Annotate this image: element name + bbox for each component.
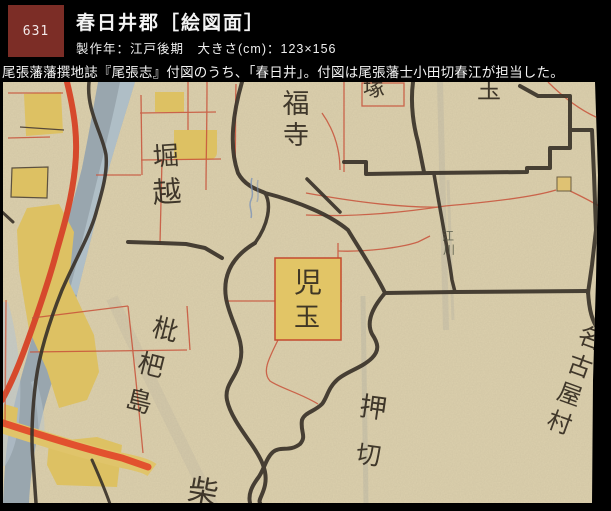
map-label-partial-bottom: 柴 (185, 474, 220, 511)
field-horikoshi-2 (174, 130, 217, 160)
map-label-kodama-1: 児 (294, 268, 322, 299)
map-label-partial-tama: 玉 (477, 80, 501, 104)
boundary-lower-horizontal (385, 291, 588, 293)
item-metadata: 製作年：江戸後期 大きさ(cm)：123×156 (76, 38, 337, 57)
catalog-number-badge: 631 (8, 5, 64, 57)
map-image[interactable]: 福 寺 塚 玉 堀 越 児 玉 枇 杷 島 押 切 江 川 (0, 80, 611, 511)
field-horikoshi-1 (155, 92, 184, 112)
map-label-fukuji-2: 寺 (283, 121, 309, 150)
map-label-oshikiri-2: 切 (354, 441, 383, 471)
field-left-outlined (11, 167, 48, 198)
archive-page: 631 春日井郡［絵図面］ 製作年：江戸後期 大きさ(cm)：123×156 尾… (0, 0, 611, 511)
map-svg: 福 寺 塚 玉 堀 越 児 玉 枇 杷 島 押 切 江 川 (0, 80, 611, 511)
road-left-edge-line (5, 300, 6, 425)
map-label-fukuji-1: 福 (283, 89, 310, 119)
map-label-horikoshi-1: 堀 (152, 141, 180, 172)
map-label-egawa-1: 江 (442, 229, 454, 243)
field-right-small (557, 177, 571, 191)
page-title: 春日井郡［絵図面］ (76, 8, 265, 35)
map-label-egawa-2: 川 (443, 243, 455, 257)
item-description: 尾張藩藩撰地誌『尾張志』付図のうち、「春日井」。付図は尾張藩士小田切春江が担当し… (2, 61, 564, 81)
catalog-number: 631 (23, 24, 49, 39)
map-label-oshikiri-1: 押 (358, 391, 389, 424)
map-label-kodama-2: 玉 (294, 303, 320, 332)
map-label-partial-tsuka: 塚 (363, 80, 385, 101)
map-label-horikoshi-2: 越 (151, 175, 182, 210)
